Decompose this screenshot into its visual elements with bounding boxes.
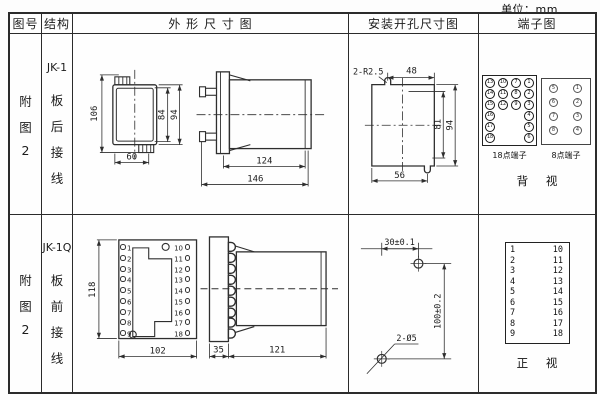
row2-terminal-cell: 123456789 101112131415161718 正 视	[479, 215, 595, 392]
dim-124: 124	[256, 157, 272, 167]
structure-char: 接	[51, 322, 64, 341]
terminal-number: 15	[543, 299, 563, 308]
dim-hole-offset-v: 100±0.2	[432, 294, 442, 330]
structure-char: 板	[51, 90, 64, 109]
terminal-8: 6	[549, 98, 558, 107]
structure-char: 后	[51, 116, 64, 135]
fig-char: 2	[22, 143, 30, 158]
row1-outline-cell: 106 84 94 60 124 146	[73, 34, 349, 215]
structure-char: 线	[51, 348, 64, 367]
terminal-screw	[200, 87, 217, 97]
dim-hole-size: 2-Ø5	[396, 333, 416, 343]
dimension-labels: 30±0.1 100±0.2 2-Ø5	[384, 237, 442, 343]
header-structure: 结构	[42, 14, 73, 34]
dim-56: 56	[394, 171, 405, 181]
terminal-8: 8	[549, 126, 558, 135]
terminal-number: 13	[543, 278, 563, 287]
structure-char: 接	[51, 142, 64, 161]
row1-mounting-cell: 2-R2.5 48 81 94 56	[349, 34, 479, 215]
front-terminal-label: 13	[173, 276, 190, 285]
dim-notch-radius: 2-R2.5	[353, 67, 383, 77]
caption-18-point: 18点端子	[479, 150, 540, 161]
header-mounting-hole: 安装开孔尺寸图	[349, 14, 479, 34]
model-name: JK-1	[47, 61, 67, 74]
front-terminal-labels-right: 101112131415161718	[73, 215, 348, 392]
terminal-8: 3	[573, 112, 582, 121]
terminal-screw	[200, 132, 217, 142]
terminal-number: 17	[543, 320, 563, 329]
model-name: JK-1Q	[43, 241, 72, 254]
dim-48: 48	[406, 67, 417, 77]
row2-fig-no: 附 图 2	[10, 215, 42, 392]
terminal-8: 2	[573, 98, 582, 107]
dim-84: 84	[158, 109, 168, 120]
row2-outline-cell: 118 102 35 121 123456789 101112131415161…	[73, 215, 349, 392]
view-label-rear: 背 视	[479, 173, 595, 189]
terminal-8: 7	[549, 112, 558, 121]
front-terminal-label: 15	[173, 298, 190, 307]
terminal-number: 16	[543, 309, 563, 318]
view-label-front: 正 视	[479, 355, 595, 371]
row1-fig-no: 附 图 2	[10, 34, 42, 215]
row2-mounting-cell: 30±0.1 100±0.2 2-Ø5	[349, 215, 479, 392]
fig-char: 2	[22, 322, 30, 337]
front-terminal-label: 11	[173, 255, 190, 264]
fig-char: 图	[19, 296, 32, 315]
front-terminal-label: 14	[173, 287, 190, 296]
terminal-number: 18	[543, 330, 563, 339]
structure-char: 板	[51, 270, 64, 289]
dim-106: 106	[90, 106, 100, 122]
side-view	[197, 72, 325, 187]
structure-char: 线	[51, 168, 64, 187]
front-terminal-label: 16	[173, 309, 190, 318]
cutout-outline	[365, 73, 458, 183]
jk1-outline-drawing: 106 84 94 60 124 146	[73, 34, 348, 212]
fig-char: 附	[19, 270, 32, 289]
terminal-number: 14	[543, 288, 563, 297]
row1-structure: JK-1 板 后 接 线	[42, 34, 73, 215]
dim-hole-offset-h: 30±0.1	[384, 237, 414, 247]
jk1-mounting-drawing: 2-R2.5 48 81 94 56	[349, 34, 478, 212]
terminal-8: 1	[573, 84, 582, 93]
fig-char: 图	[19, 117, 32, 136]
fig-char: 附	[19, 91, 32, 110]
dim-60: 60	[126, 153, 137, 163]
dimension-labels: 2-R2.5 48 81 94 56	[353, 67, 456, 181]
spec-table: 图号 结构 外 形 尺 寸 图 安装开孔尺寸图 端子图 附 图 2 JK-1 板…	[8, 12, 597, 394]
terminal-8: 4	[573, 126, 582, 135]
dim-94: 94	[170, 109, 180, 120]
front-terminal-label: 17	[173, 319, 190, 328]
front-terminal-label: 18	[173, 330, 190, 339]
header-terminal-diagram: 端子图	[479, 14, 595, 34]
terminal-number: 12	[543, 267, 563, 276]
header-outline-dimension: 外 形 尺 寸 图	[73, 14, 349, 34]
dim-146: 146	[247, 174, 263, 184]
dim-94: 94	[446, 120, 456, 131]
terminal-number: 10	[543, 246, 563, 255]
terminal-8: 5	[549, 84, 558, 93]
row2-structure: JK-1Q 板 前 接 线	[42, 215, 73, 392]
header-fig-no: 图号	[10, 14, 42, 34]
row1-terminal-cell: 131071141182151293164175186 51627384 18点…	[479, 34, 595, 215]
jk1q-mounting-drawing: 30±0.1 100±0.2 2-Ø5	[349, 215, 478, 392]
front-terminal-label: 12	[173, 266, 190, 275]
caption-8-point: 8点端子	[541, 150, 591, 161]
front-terminal-label: 10	[173, 244, 190, 253]
structure-char: 前	[51, 296, 64, 315]
dim-81: 81	[433, 119, 443, 130]
terminal-number: 11	[543, 257, 563, 266]
